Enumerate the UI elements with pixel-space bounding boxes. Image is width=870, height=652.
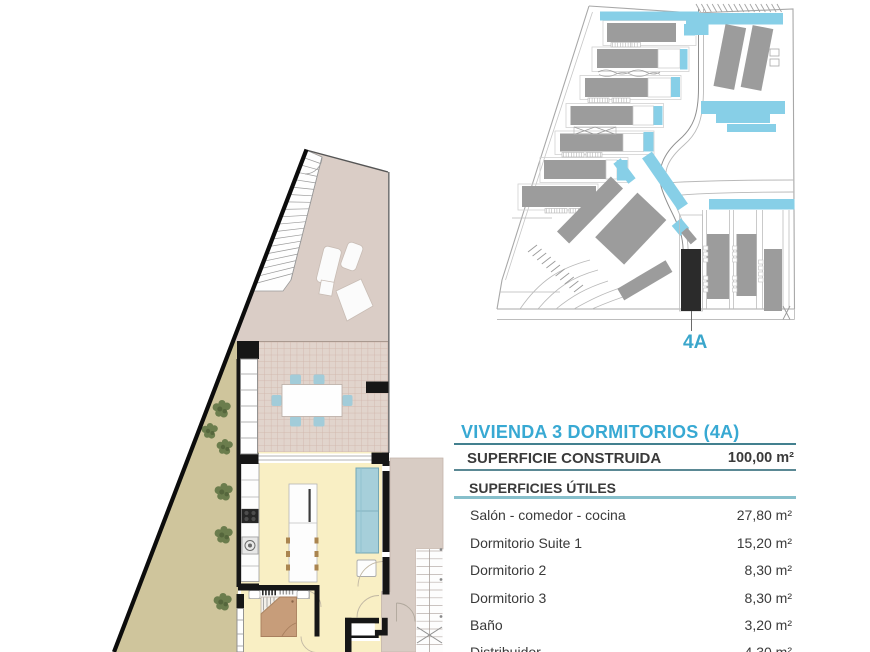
svg-text:4A: 4A [683, 332, 708, 353]
